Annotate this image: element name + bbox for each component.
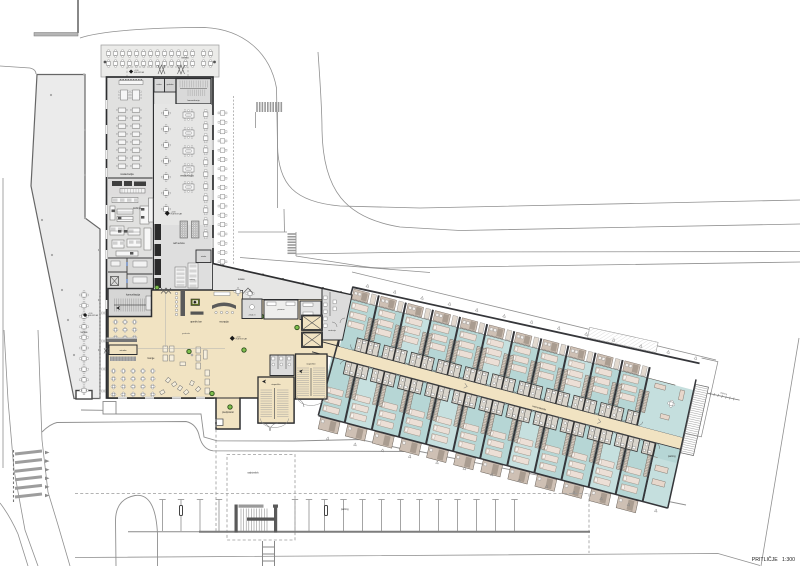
svg-text:parking: parking bbox=[341, 508, 349, 511]
svg-text:sanitarije: sanitarije bbox=[328, 329, 336, 332]
svg-text:parking: parking bbox=[668, 455, 676, 458]
svg-text:vetrolov: vetrolov bbox=[119, 349, 126, 352]
svg-text:lounge: lounge bbox=[148, 358, 156, 360]
svg-text:terasa: terasa bbox=[81, 331, 88, 334]
svg-text:terasa: terasa bbox=[182, 57, 190, 60]
svg-text:restavracija: restavracija bbox=[120, 172, 134, 176]
svg-text:restavracija: restavracija bbox=[180, 174, 194, 178]
svg-text:stopnišče: stopnišče bbox=[306, 363, 316, 366]
svg-text:komunikacija: komunikacija bbox=[187, 100, 200, 102]
svg-text:+1.30: +1.30 bbox=[171, 211, 176, 213]
svg-text:kuhinja: kuhinja bbox=[133, 207, 141, 210]
svg-text:aperitiv bar: aperitiv bar bbox=[190, 321, 202, 324]
svg-text:nadstrešek: nadstrešek bbox=[247, 472, 259, 475]
svg-text:recepcija: recepcija bbox=[219, 321, 229, 324]
svg-text:+1.30: +1.30 bbox=[134, 70, 138, 72]
svg-text:stopnišče: stopnišče bbox=[271, 383, 281, 386]
svg-text:PRITLIČJE 1:300: PRITLIČJE 1:300 bbox=[752, 556, 795, 563]
svg-text:self service: self service bbox=[173, 242, 185, 245]
svg-text:garderoba: garderoba bbox=[182, 332, 190, 335]
svg-text:predprostor: predprostor bbox=[222, 411, 234, 414]
svg-text:pisarna: pisarna bbox=[278, 308, 286, 311]
svg-text:komunikacija: komunikacija bbox=[126, 294, 140, 297]
svg-text:+1.30: +1.30 bbox=[88, 313, 92, 315]
svg-text:terasa: terasa bbox=[238, 278, 245, 281]
svg-text:+1.30: +1.30 bbox=[236, 336, 241, 338]
